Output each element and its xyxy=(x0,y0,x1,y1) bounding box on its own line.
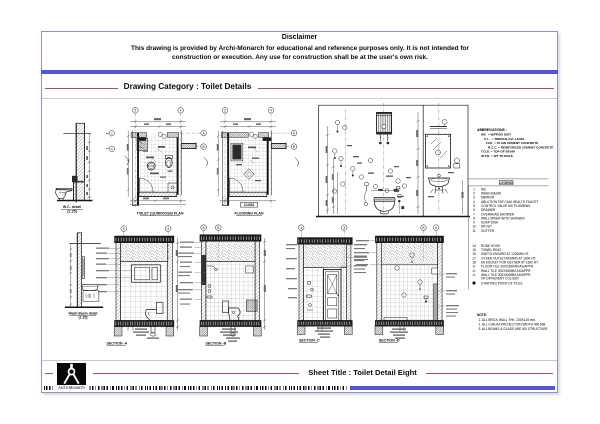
svg-text:4: 4 xyxy=(167,227,169,231)
svg-text:C/4533: C/4533 xyxy=(244,203,255,207)
svg-text:11: 11 xyxy=(472,229,476,233)
svg-text:STARTING POINT OF TILES: STARTING POINT OF TILES xyxy=(481,281,522,285)
svg-text:4: 4 xyxy=(300,226,302,230)
svg-text:2. ALL CHAJJA PROJECTION WIDTH: 2. ALL CHAJJA PROJECTION WIDTH 450 MM. xyxy=(479,323,547,327)
svg-text:LEGEND: LEGEND xyxy=(500,181,514,185)
svg-text:4: 4 xyxy=(180,109,182,113)
svg-text:ABBREVIATIONS :: ABBREVIATIONS : xyxy=(477,128,507,132)
svg-text:SECTION -D: SECTION -D xyxy=(379,339,400,343)
svg-text:5: 5 xyxy=(134,109,136,113)
svg-text:-0-: -0- xyxy=(472,273,476,277)
svg-text:6: 6 xyxy=(111,147,113,151)
svg-text:NOTE:: NOTE: xyxy=(477,313,487,317)
svg-text:(1:25): (1:25) xyxy=(67,209,77,213)
svg-text:5: 5 xyxy=(123,227,125,231)
svg-text:1. ALL BRICK WALL THK. 230X115: 1. ALL BRICK WALL THK. 230X115 mm. xyxy=(479,318,537,322)
svg-text:GUTTER: GUTTER xyxy=(481,229,495,233)
svg-text:OF DIFFERENT COLOUR: OF DIFFERENT COLOUR xyxy=(481,276,519,280)
svg-text:A: A xyxy=(203,131,206,135)
svg-text:B: B xyxy=(217,226,219,230)
svg-text:2: 2 xyxy=(111,132,113,136)
svg-text:A: A xyxy=(435,226,438,230)
svg-text:SECTION -C: SECTION -C xyxy=(299,339,320,343)
svg-text:SECTION -B: SECTION -B xyxy=(206,342,227,346)
svg-text:B: B xyxy=(422,226,424,230)
svg-text:3. ALL BEAMS & GLASS ARE AS/ S: 3. ALL BEAMS & GLASS ARE AS/ STRUCTURE xyxy=(479,327,548,331)
svg-text:SECTION -A: SECTION -A xyxy=(107,342,128,346)
svg-text:(1:25): (1:25) xyxy=(78,316,87,320)
svg-text:A: A xyxy=(293,131,296,135)
svg-text:B: B xyxy=(293,145,295,149)
svg-text:3: 3 xyxy=(343,226,345,230)
svg-text:3: 3 xyxy=(224,109,226,113)
svg-text:A: A xyxy=(203,226,206,230)
svg-text:TOILET (1)UNROOSID PLAN: TOILET (1)UNROOSID PLAN xyxy=(137,212,184,216)
svg-text:4: 4 xyxy=(270,109,272,113)
svg-text:B: B xyxy=(203,145,205,149)
svg-text:W.T.B. = WT TK BOLE: W.T.B. = WT TK BOLE xyxy=(481,154,513,158)
svg-text:FLOORING PLAN: FLOORING PLAN xyxy=(235,212,264,216)
